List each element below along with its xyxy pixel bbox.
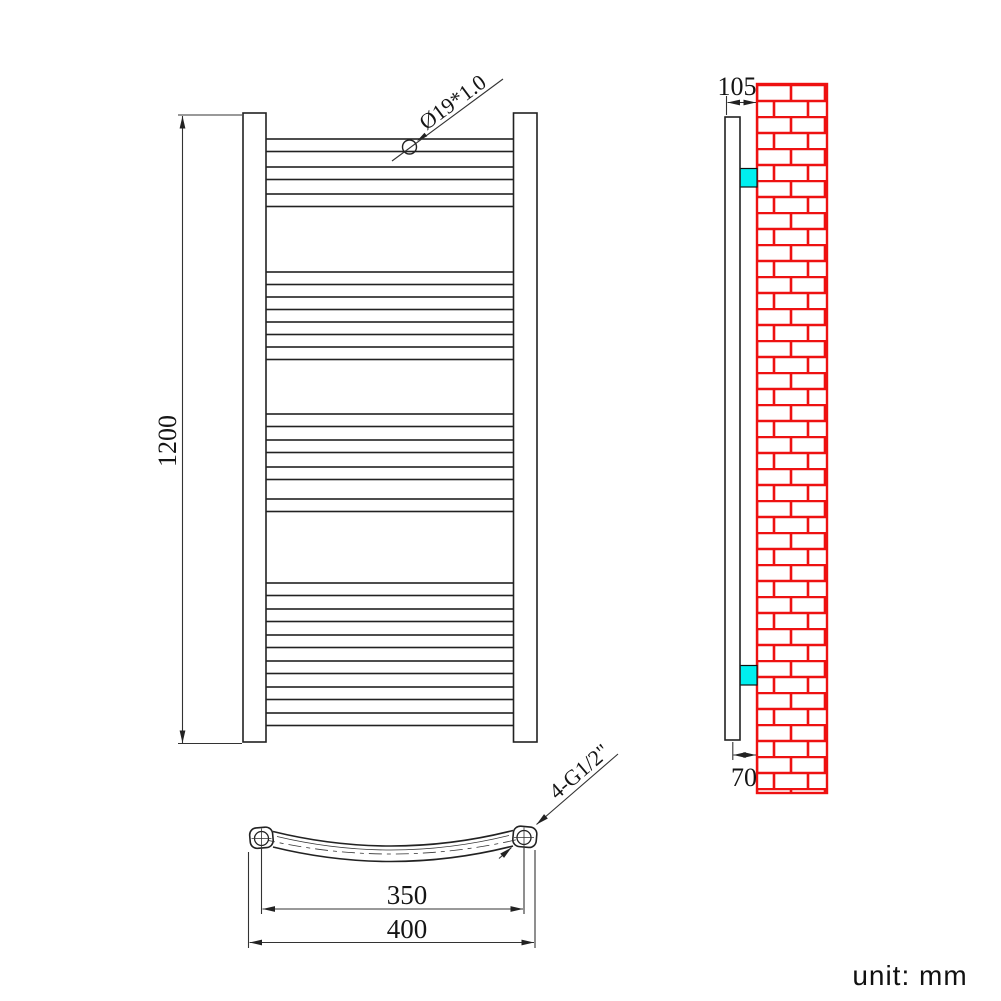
radiator-bar <box>265 414 514 427</box>
side-view: 105 70 <box>718 72 828 793</box>
right-rail <box>514 113 538 742</box>
overall-width-label: 400 <box>387 914 428 944</box>
radiator-bar <box>265 322 514 335</box>
radiator-bar <box>265 609 514 622</box>
radiator-bar <box>265 297 514 310</box>
radiator-bar <box>265 272 514 285</box>
radiator-bar <box>265 583 514 596</box>
height-dimension-label: 1200 <box>153 415 182 467</box>
radiator-bar <box>265 347 514 360</box>
radiator-bar <box>265 635 514 648</box>
radiator-bar <box>265 713 514 726</box>
radiator-bar <box>265 687 514 700</box>
brick-wall <box>757 84 827 793</box>
towel-radiator-drawing: 1200 Ø19*1.0 105 70 <box>0 0 1001 1001</box>
radiator-bar <box>265 661 514 674</box>
left-rail <box>243 113 266 742</box>
radiator-bar <box>265 167 514 180</box>
technical-drawing-page: 1200 Ø19*1.0 105 70 <box>0 0 1001 1001</box>
curved-tube-highlight <box>277 836 509 851</box>
radiator-bar <box>265 194 514 207</box>
mounting-bracket-bottom <box>740 666 757 686</box>
curved-tube-top-edge <box>273 831 513 847</box>
centers-width-label: 350 <box>387 880 428 910</box>
radiator-bar <box>265 139 514 152</box>
tube-diameter-label: Ø19*1.0 <box>414 69 490 135</box>
radiator-bar <box>265 499 514 512</box>
front-bars <box>265 139 514 726</box>
bottom-offset-label: 70 <box>731 763 757 792</box>
top-offset-label: 105 <box>718 72 757 101</box>
bottom-view: 4-G1/2" 350 400 <box>249 739 619 948</box>
side-rail <box>725 117 740 740</box>
radiator-bar <box>265 467 514 480</box>
fitting-label: 4-G1/2" <box>544 739 614 804</box>
unit-label: unit: mm <box>852 960 967 991</box>
front-view: 1200 Ø19*1.0 <box>153 69 537 743</box>
radiator-bar <box>265 440 514 453</box>
mounting-bracket-top <box>740 169 757 188</box>
